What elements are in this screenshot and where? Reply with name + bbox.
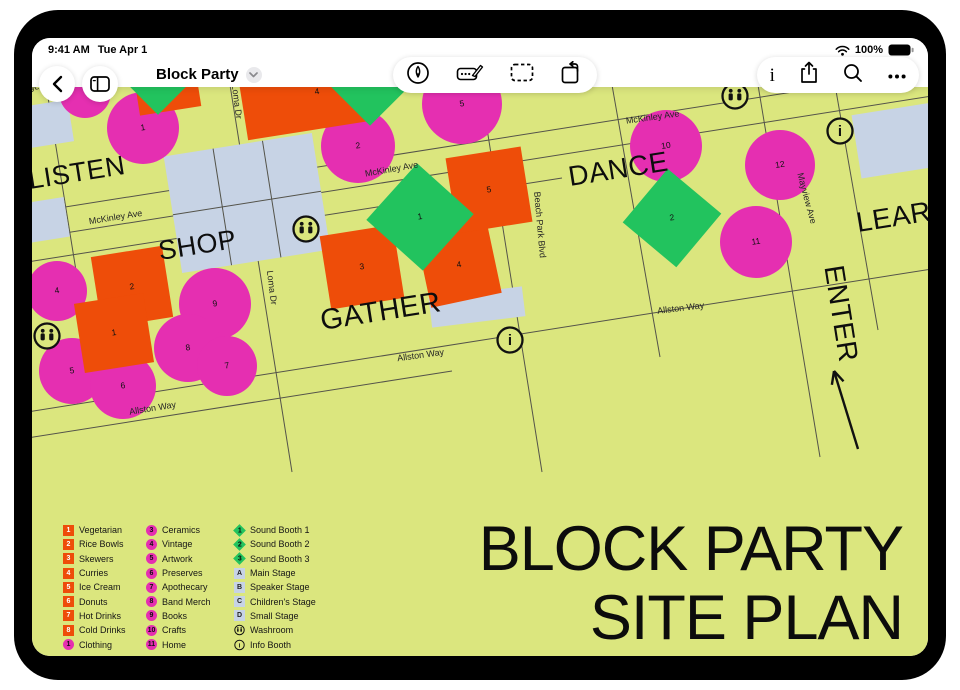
legend-label: Crafts [162,625,186,635]
board-title[interactable]: Block Party [156,66,262,83]
poster-title: BLOCK PARTY SITE PLAN [479,515,903,653]
legend-item: 11Home [146,637,211,651]
drawing-tools-pill [393,57,597,93]
legend-label: Sound Booth 1 [250,525,310,535]
food-badge: 7 [63,610,74,621]
street-label: McKinley Ave [88,208,143,226]
selection-rect-icon [510,63,534,82]
food-badge: 2 [63,539,74,550]
search-button[interactable] [843,63,863,88]
legend-item: 1Sound Booth 1 [234,523,316,537]
legend-label: Preserves [162,568,203,578]
zone-label[interactable]: ENTER [818,263,864,364]
vendor-circle[interactable] [422,87,502,144]
stage-badge: C [234,596,245,607]
legend-item: 8Cold Drinks [63,623,126,637]
freeform-canvas[interactable]: Stage AStage CS12545698710121142134512LI… [32,87,928,656]
chevron-down-icon [249,72,258,78]
legend-label: Hot Drinks [79,611,121,621]
vendor-badge: 1 [63,639,74,650]
street-label: Mayview Ave [795,172,818,225]
legend-label: Children's Stage [250,597,316,607]
stage-badge: D [234,610,245,621]
food-badge: 3 [63,553,74,564]
ipad-bezel: 9:41 AM Tue Apr 1 100% [14,10,946,680]
street-label: Loma Dr [265,270,279,305]
info-button[interactable]: i [770,66,775,85]
stage-rect[interactable] [852,102,928,179]
legend-item: 7Apothecary [146,580,211,594]
vendor-badge: 11 [146,639,157,650]
stage-badge: B [234,582,245,593]
vendor-badge: 9 [146,610,157,621]
legend-label: Speaker Stage [250,582,310,592]
legend-item: AMain Stage [234,566,316,580]
search-icon [843,63,863,83]
legend-label: Info Booth [250,640,291,650]
legend-item: 5Artwork [146,552,211,566]
legend-label: Cold Drinks [79,625,126,635]
legend-item: Washroom [234,623,316,637]
legend-label: Books [162,611,187,621]
shape-number: 12 [774,159,785,170]
marker-scribble-icon [456,62,484,84]
more-button[interactable] [888,66,906,84]
legend-item: 1Vegetarian [63,523,126,537]
legend-item: 8Band Merch [146,594,211,608]
legend-column: 3Ceramics4Vintage5Artwork6Preserves7Apot… [146,523,211,652]
screen: 9:41 AM Tue Apr 1 100% [32,38,928,656]
back-button[interactable] [39,66,75,102]
legend-label: Curries [79,568,108,578]
street-label: Allston Way [657,300,706,316]
sound-booth-badge: 1 [233,524,246,537]
legend-item: 1Clothing [63,637,126,651]
legend-item: 4Vintage [146,537,211,551]
legend-item: 9Books [146,609,211,623]
legend-label: Rice Bowls [79,539,124,549]
legend-item: CChildren's Stage [234,594,316,608]
street-label: Allston Way [397,347,446,364]
shape-number: 11 [751,236,762,247]
washroom-icon[interactable] [35,324,60,349]
boards-sidebar-icon [90,76,110,92]
svg-text:i: i [838,123,842,140]
status-time: 9:41 AM [48,44,90,56]
legend-label: Washroom [250,625,293,635]
legend-item: iInfo Booth [234,637,316,651]
vendor-badge: 3 [146,525,157,536]
ellipsis-icon [888,74,906,79]
info-booth-icon[interactable]: i [498,328,523,353]
vendor-badge: 5 [146,553,157,564]
food-badge: 6 [63,596,74,607]
legend-label: Vegetarian [79,525,122,535]
legend-item: DSmall Stage [234,609,316,623]
legend-label: Sound Booth 3 [250,554,310,564]
legend-label: Clothing [79,640,112,650]
status-date: Tue Apr 1 [98,44,148,56]
info-icon: i [234,639,245,650]
legend-label: Sound Booth 2 [250,539,310,549]
stage-badge: A [234,568,245,579]
vendor-badge: 6 [146,568,157,579]
poster-line-2: SITE PLAN [479,584,903,653]
entry-arrow[interactable] [834,371,858,449]
zone-label[interactable]: LEARN [854,192,928,238]
washroom-icon [234,625,245,636]
legend-label: Skewers [79,554,114,564]
legend-item: 3Ceramics [146,523,211,537]
legend-item: 7Hot Drinks [63,609,126,623]
legend-label: Donuts [79,597,108,607]
legend-label: Artwork [162,554,193,564]
vendor-badge: 7 [146,582,157,593]
legend-item: 3Skewers [63,552,126,566]
legend-label: Main Stage [250,568,296,578]
stage-rect[interactable] [32,197,70,243]
food-badge: 5 [63,582,74,593]
legend-label: Home [162,640,186,650]
legend-label: Vintage [162,539,192,549]
info-icon: i [770,65,775,86]
svg-text:i: i [508,332,512,349]
legend-label: Band Merch [162,597,211,607]
battery-percent: 100% [855,44,883,56]
legend-item: 2Rice Bowls [63,537,126,551]
share-button[interactable] [800,61,818,89]
legend-item: 10Crafts [146,623,211,637]
entry-arrowhead [832,371,834,385]
actions-pill: i [757,57,919,93]
battery-icon [888,44,914,56]
title-menu-button[interactable] [246,67,262,83]
shape-rotate-tool-button[interactable] [560,61,584,90]
board-title-label: Block Party [156,66,239,83]
legend-item: 6Preserves [146,566,211,580]
pencil-circle-icon [406,61,430,85]
shape-rotate-icon [560,61,584,85]
legend-item: 4Curries [63,566,126,580]
sidebar-button[interactable] [82,66,118,102]
food-badge: 8 [63,625,74,636]
marker-tool-button[interactable] [456,62,484,89]
legend-label: Ceramics [162,525,200,535]
legend-item: 6Donuts [63,594,126,608]
share-icon [800,61,818,84]
page: 9:41 AM Tue Apr 1 100% [0,0,960,690]
pencil-tool-button[interactable] [406,61,430,90]
food-badge: 1 [63,525,74,536]
info-booth-icon[interactable]: i [828,119,853,144]
legend-item: BSpeaker Stage [234,580,316,594]
street-label: Beach Park Blvd [532,191,548,258]
legend-label: Apothecary [162,582,208,592]
vendor-badge: 4 [146,539,157,550]
svg-text:i: i [239,642,241,649]
legend-item: 5Ice Cream [63,580,126,594]
back-chevron-icon [51,75,63,93]
vendor-badge: 10 [146,625,157,636]
legend-column: 1Sound Booth 12Sound Booth 23Sound Booth… [234,523,316,652]
zone-label[interactable]: LISTEN [32,150,127,195]
legend-item: 2Sound Booth 2 [234,537,316,551]
sound-booth-badge: 3 [233,552,246,565]
washroom-icon[interactable] [294,217,319,242]
legend-item: 3Sound Booth 3 [234,552,316,566]
food-badge: 4 [63,568,74,579]
select-tool-button[interactable] [510,63,534,87]
poster-line-1: BLOCK PARTY [479,515,903,584]
sound-booth-badge: 2 [233,538,246,551]
washroom-icon[interactable] [723,87,748,109]
vendor-badge: 8 [146,596,157,607]
legend-column: 1Vegetarian2Rice Bowls3Skewers4Curries5I… [63,523,126,652]
legend-label: Small Stage [250,611,299,621]
legend-label: Ice Cream [79,582,121,592]
wifi-icon [835,45,850,56]
